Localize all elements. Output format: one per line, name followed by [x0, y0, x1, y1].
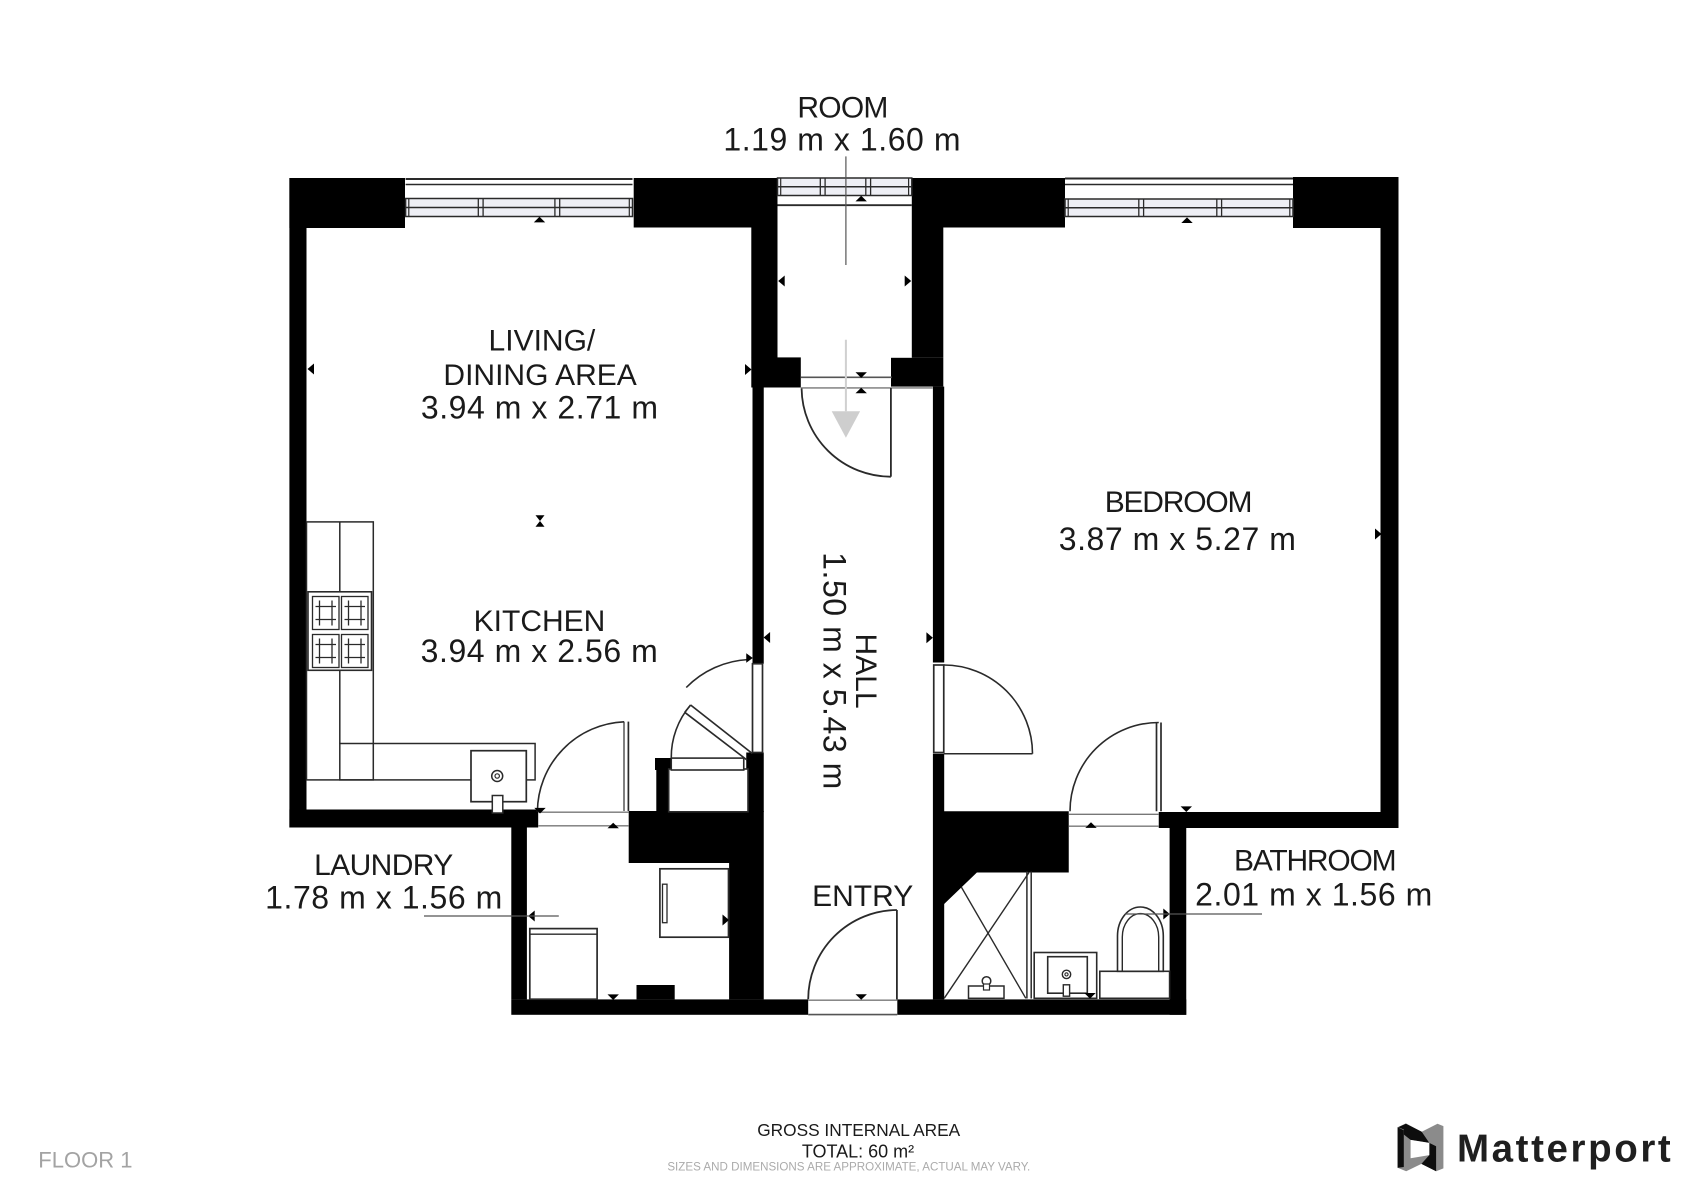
svg-text:FLOOR 1: FLOOR 1 [38, 1148, 132, 1173]
svg-text:SIZES AND DIMENSIONS ARE APPRO: SIZES AND DIMENSIONS ARE APPROXIMATE, AC… [667, 1160, 1030, 1173]
svg-text:TOTAL: 60 m²: TOTAL: 60 m² [802, 1141, 914, 1161]
svg-text:3.94 m x 2.56 m: 3.94 m x 2.56 m [421, 633, 659, 669]
svg-text:LIVING/: LIVING/ [489, 325, 596, 358]
svg-text:BATHROOM: BATHROOM [1234, 845, 1396, 878]
svg-text:LAUNDRY: LAUNDRY [314, 849, 453, 882]
svg-text:Matterport: Matterport [1457, 1128, 1673, 1171]
svg-text:1.78 m x 1.56 m: 1.78 m x 1.56 m [265, 880, 503, 916]
svg-text:2.01 m x 1.56 m: 2.01 m x 1.56 m [1195, 876, 1433, 912]
svg-text:ENTRY: ENTRY [812, 880, 913, 913]
svg-text:HALL: HALL [849, 633, 882, 708]
svg-text:ROOM: ROOM [797, 92, 887, 125]
svg-text:1.19 m x 1.60 m: 1.19 m x 1.60 m [723, 122, 961, 158]
svg-text:3.87 m x 5.27 m: 3.87 m x 5.27 m [1059, 521, 1297, 557]
svg-text:GROSS INTERNAL AREA: GROSS INTERNAL AREA [757, 1120, 960, 1140]
svg-text:1.50 m x 5.43 m: 1.50 m x 5.43 m [817, 552, 853, 790]
svg-text:3.94 m x 2.71 m: 3.94 m x 2.71 m [421, 390, 659, 426]
svg-text:BEDROOM: BEDROOM [1105, 486, 1252, 519]
svg-text:DINING AREA: DINING AREA [443, 359, 636, 392]
